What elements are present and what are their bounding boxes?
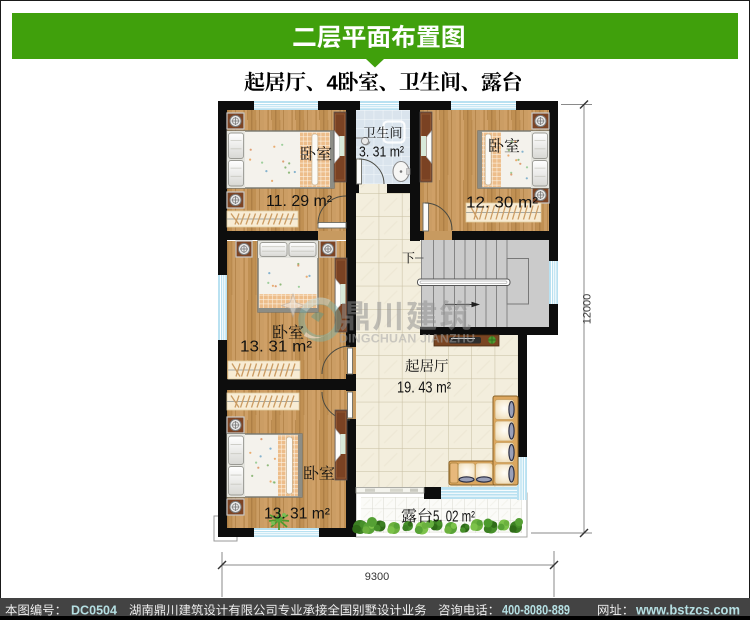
svg-text:13. 31 m²: 13. 31 m² xyxy=(264,506,330,523)
svg-text:19. 43 m²: 19. 43 m² xyxy=(397,380,451,397)
svg-text:12. 30 m²: 12. 30 m² xyxy=(466,195,538,212)
svg-text:13. 31 m²: 13. 31 m² xyxy=(240,339,312,356)
svg-text:11. 29 m²: 11. 29 m² xyxy=(266,193,332,210)
svg-text:DC0504: DC0504 xyxy=(71,603,118,618)
svg-text:5. 02 m²: 5. 02 m² xyxy=(433,509,475,526)
svg-text:4: 4 xyxy=(327,72,339,95)
svg-text:12000: 12000 xyxy=(582,294,594,325)
svg-text:400-8080-889: 400-8080-889 xyxy=(502,603,570,618)
svg-text:3. 31 m²: 3. 31 m² xyxy=(359,144,404,161)
svg-text:www.bstzcs.com: www.bstzcs.com xyxy=(635,603,740,618)
svg-text:9300: 9300 xyxy=(365,571,389,583)
svg-text:DINGCHUAN JIANZHU: DINGCHUAN JIANZHU xyxy=(339,332,475,346)
